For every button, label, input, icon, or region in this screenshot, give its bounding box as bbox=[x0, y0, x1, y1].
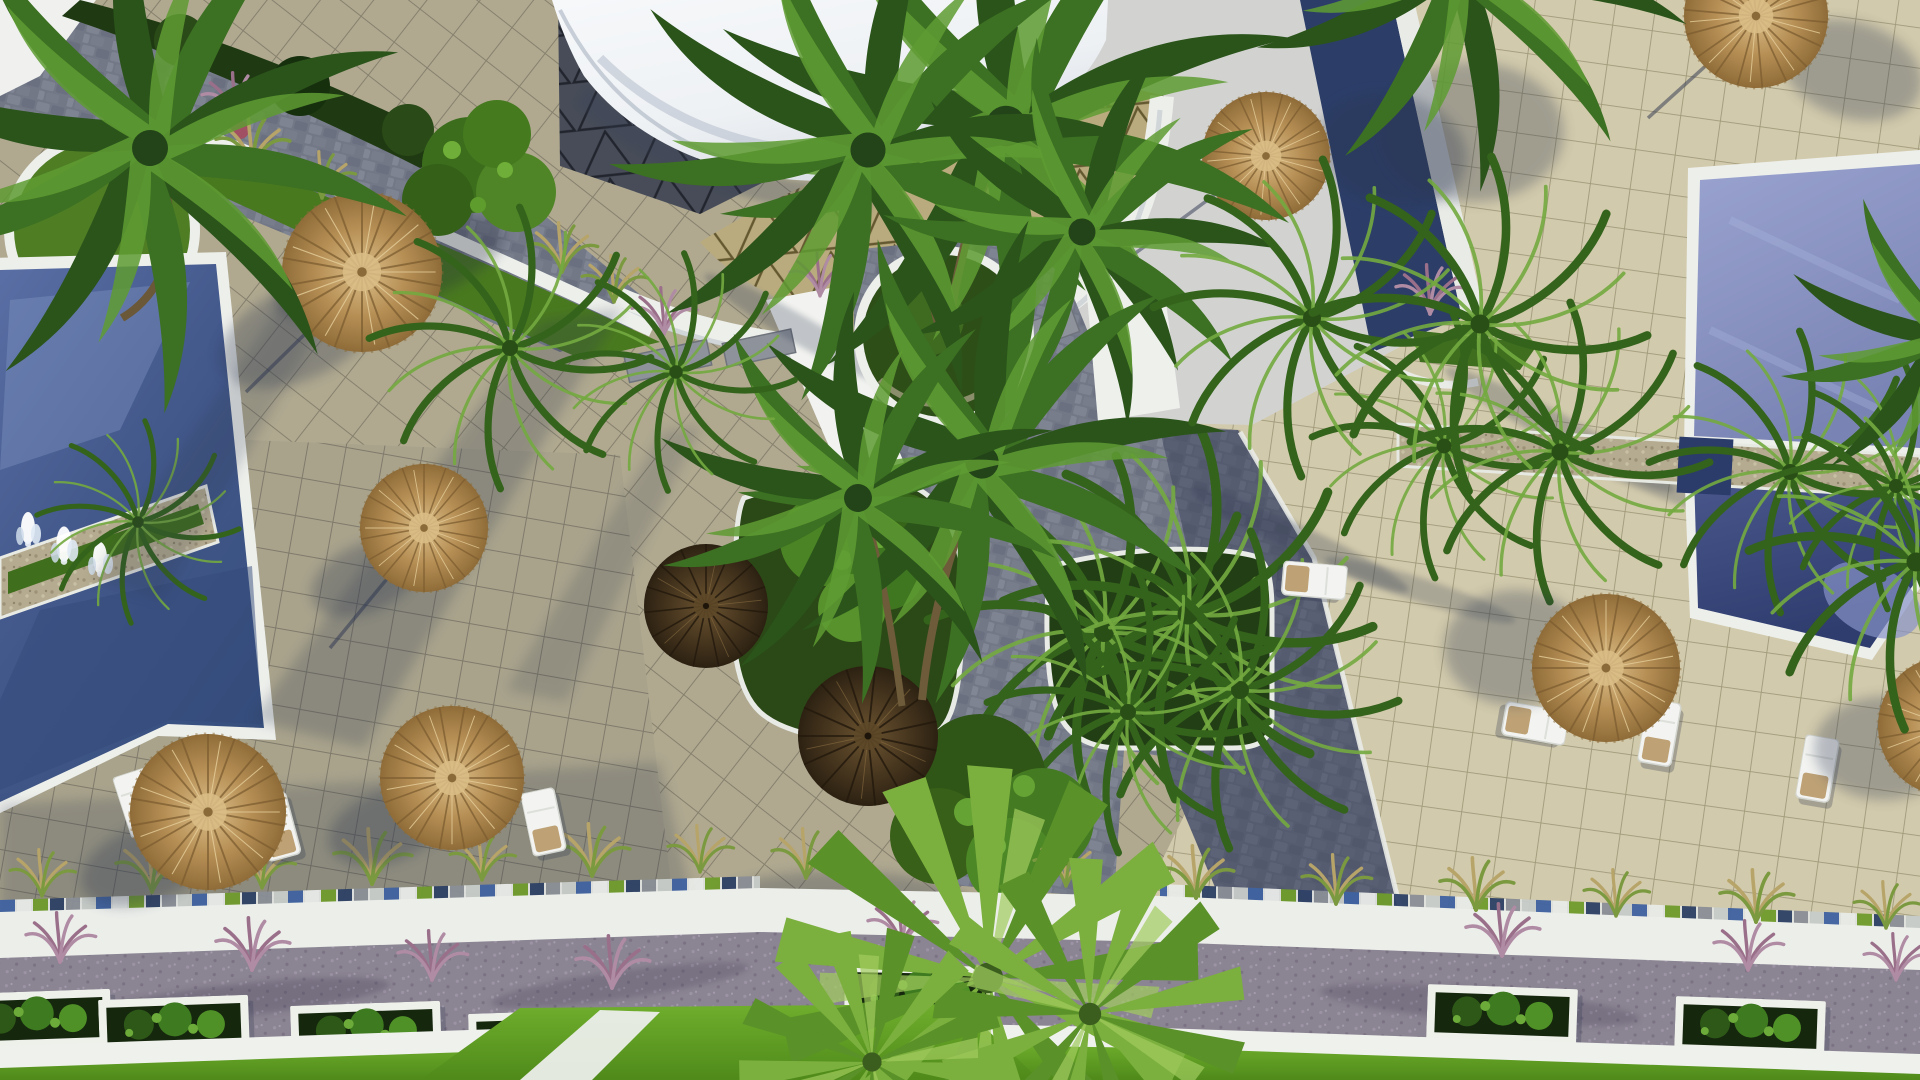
render-scene bbox=[0, 0, 1920, 1080]
scene-canvas bbox=[0, 0, 1920, 1080]
lounger bbox=[1275, 560, 1348, 604]
